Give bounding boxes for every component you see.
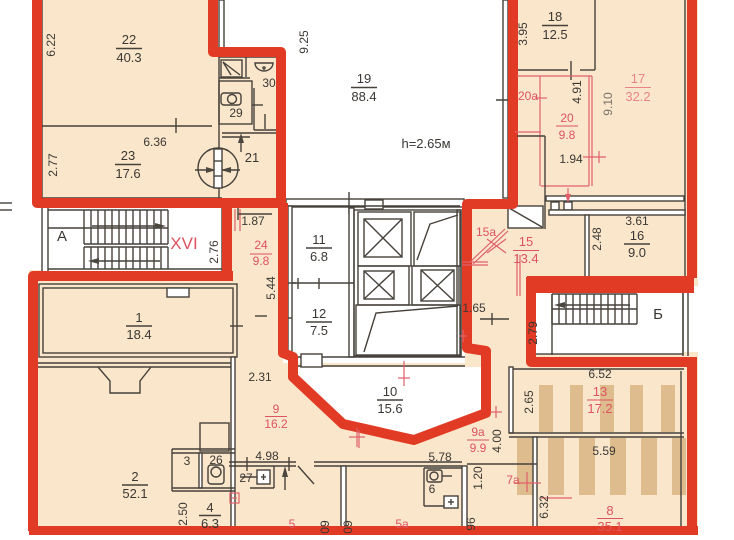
svg-text:13.4: 13.4 <box>513 251 538 266</box>
svg-text:2.65: 2.65 <box>522 390 536 414</box>
svg-text:6: 6 <box>429 482 436 496</box>
svg-text:2.31: 2.31 <box>248 370 272 384</box>
svg-text:9.10: 9.10 <box>601 92 615 116</box>
svg-text:5: 5 <box>289 517 296 531</box>
svg-text:16.2: 16.2 <box>264 417 288 431</box>
svg-text:XVI: XVI <box>170 234 197 253</box>
svg-text:3.95: 3.95 <box>516 22 530 46</box>
svg-text:5.44: 5.44 <box>264 276 278 300</box>
svg-text:96: 96 <box>464 517 478 531</box>
svg-text:21: 21 <box>245 150 259 165</box>
svg-text:2.79: 2.79 <box>526 321 540 345</box>
svg-text:9a: 9a <box>471 425 485 439</box>
svg-text:15: 15 <box>519 234 533 249</box>
svg-text:40.3: 40.3 <box>116 50 141 65</box>
svg-text:15a: 15a <box>476 225 496 239</box>
svg-text:1.87: 1.87 <box>241 214 265 228</box>
svg-text:5.78: 5.78 <box>428 450 452 464</box>
svg-text:4: 4 <box>206 500 213 515</box>
svg-text:6.32: 6.32 <box>537 495 551 519</box>
svg-text:17: 17 <box>631 71 645 86</box>
svg-text:2.76: 2.76 <box>207 240 221 264</box>
svg-text:1.65: 1.65 <box>462 301 486 315</box>
svg-text:h=2.65м: h=2.65м <box>401 136 450 151</box>
svg-text:1.94: 1.94 <box>559 152 583 166</box>
svg-text:3.61: 3.61 <box>625 214 649 228</box>
svg-text:09: 09 <box>341 520 355 534</box>
svg-text:18.4: 18.4 <box>126 327 151 342</box>
svg-text:7.5: 7.5 <box>310 323 328 338</box>
svg-text:22: 22 <box>122 32 136 47</box>
svg-text:32.2: 32.2 <box>625 89 650 104</box>
svg-text:5.59: 5.59 <box>592 444 616 458</box>
svg-text:А: А <box>57 228 67 245</box>
svg-text:9.25: 9.25 <box>297 30 311 54</box>
svg-text:26: 26 <box>209 453 223 467</box>
svg-text:17.2: 17.2 <box>587 401 612 416</box>
svg-text:10: 10 <box>383 384 397 399</box>
svg-text:12: 12 <box>312 306 326 321</box>
svg-text:24: 24 <box>254 238 268 252</box>
svg-text:1: 1 <box>135 310 142 325</box>
svg-text:9.8: 9.8 <box>559 128 576 142</box>
svg-text:9.8: 9.8 <box>253 254 270 268</box>
svg-text:9: 9 <box>273 402 280 416</box>
svg-text:52.1: 52.1 <box>122 486 147 501</box>
svg-text:9.0: 9.0 <box>628 245 646 260</box>
svg-text:27: 27 <box>239 471 253 485</box>
svg-text:13: 13 <box>593 384 607 399</box>
svg-text:6.3: 6.3 <box>201 516 219 531</box>
svg-text:4.91: 4.91 <box>570 80 584 104</box>
svg-text:15.6: 15.6 <box>377 401 402 416</box>
svg-text:29: 29 <box>229 106 243 120</box>
svg-text:12.5: 12.5 <box>542 27 567 42</box>
svg-text:23: 23 <box>121 148 135 163</box>
svg-text:8: 8 <box>606 503 613 518</box>
svg-text:35.1: 35.1 <box>597 519 622 534</box>
svg-text:4.00: 4.00 <box>490 429 504 453</box>
svg-text:09: 09 <box>318 520 332 534</box>
svg-text:Б: Б <box>653 306 663 323</box>
svg-text:6.8: 6.8 <box>310 249 328 264</box>
svg-text:30: 30 <box>262 76 276 90</box>
svg-text:5a: 5a <box>395 517 409 531</box>
svg-text:6.22: 6.22 <box>44 33 58 57</box>
svg-text:20: 20 <box>560 111 574 125</box>
svg-text:9.9: 9.9 <box>470 441 487 455</box>
svg-text:2: 2 <box>131 469 138 484</box>
svg-text:16: 16 <box>630 228 644 243</box>
svg-text:6.36: 6.36 <box>143 135 167 149</box>
svg-text:88.4: 88.4 <box>351 89 376 104</box>
svg-text:17.6: 17.6 <box>115 166 140 181</box>
svg-text:7a: 7a <box>506 473 520 487</box>
svg-text:2.77: 2.77 <box>46 153 60 177</box>
svg-text:3: 3 <box>184 454 191 468</box>
svg-text:2.48: 2.48 <box>590 227 604 251</box>
svg-text:19: 19 <box>357 71 371 86</box>
svg-text:6.52: 6.52 <box>588 367 612 381</box>
svg-text:11: 11 <box>312 232 326 247</box>
svg-text:20a: 20a <box>518 89 538 103</box>
svg-text:4.98: 4.98 <box>255 449 279 463</box>
svg-text:1.20: 1.20 <box>471 466 485 490</box>
svg-text:2.50: 2.50 <box>176 502 190 526</box>
svg-text:18: 18 <box>548 9 562 24</box>
